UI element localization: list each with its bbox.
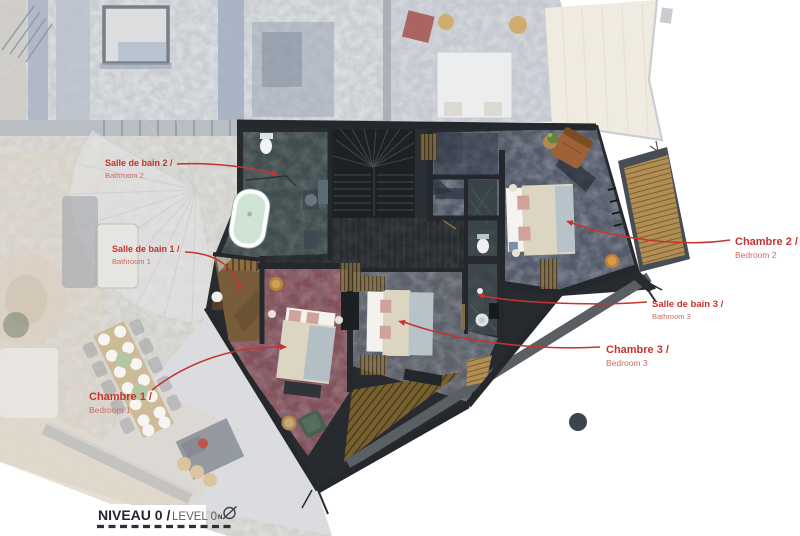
svg-text:Bathroom 3: Bathroom 3 (652, 312, 691, 321)
svg-text:Bedroom 2: Bedroom 2 (735, 250, 777, 260)
svg-text:NIVEAU 0 /: NIVEAU 0 / (98, 507, 170, 523)
svg-text:Chambre 2 /: Chambre 2 / (735, 236, 798, 248)
svg-text:Salle de bain 2 /: Salle de bain 2 / (105, 158, 173, 168)
svg-text:Chambre 3 /: Chambre 3 / (606, 344, 669, 356)
svg-text:Bedroom 1: Bedroom 1 (89, 405, 131, 415)
svg-text:Bathroom 1: Bathroom 1 (112, 257, 151, 266)
svg-text:Chambre 1 /: Chambre 1 / (89, 391, 152, 403)
svg-text:Salle de bain 1 /: Salle de bain 1 / (112, 244, 180, 254)
svg-text:Salle de bain 3 /: Salle de bain 3 / (652, 299, 724, 310)
svg-text:Bathroom 2: Bathroom 2 (105, 171, 144, 180)
svg-text:Bedroom 3: Bedroom 3 (606, 358, 648, 368)
svg-text:LEVEL 0: LEVEL 0 (172, 511, 217, 523)
svg-text:N: N (218, 515, 222, 521)
